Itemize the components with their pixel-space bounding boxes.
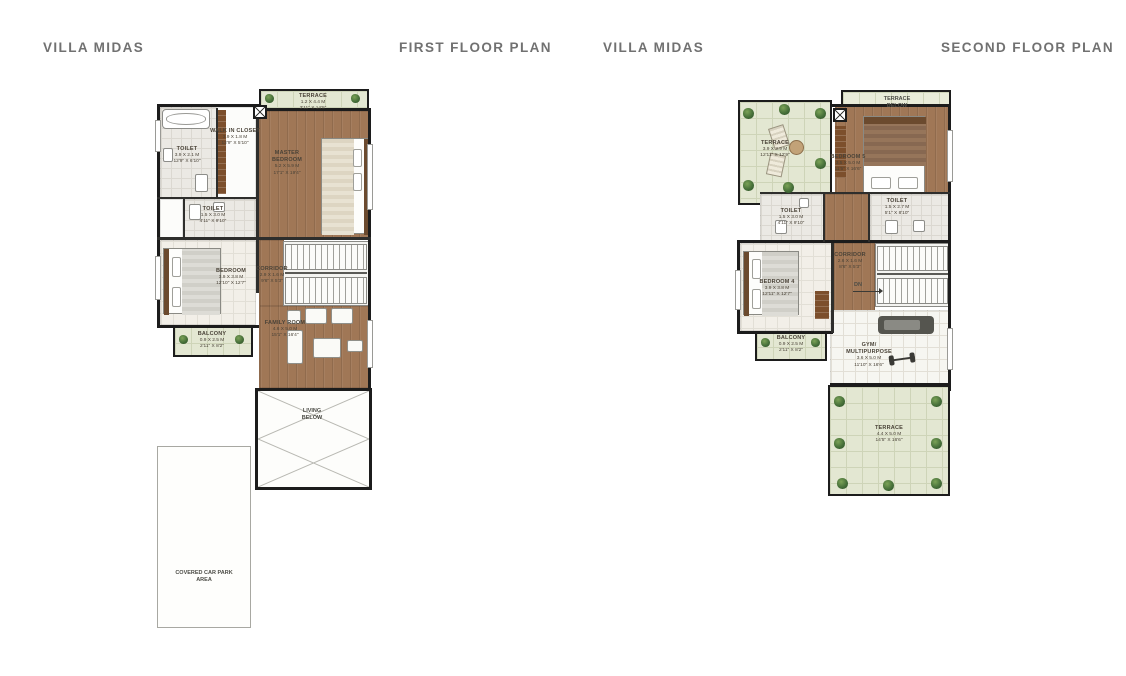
room-label-balcony: BALCONY 0.9 X 2.5 M 2'11" X 8'2": [184, 331, 240, 351]
wall: [737, 240, 950, 243]
dn-arrow-line: [853, 291, 879, 292]
room-label-toilet-left: TOILET 1.5 X 3.0 M 4'11" X 9'10": [763, 208, 819, 228]
staircase2: [875, 243, 950, 307]
room-label-master-bedroom: MASTER BEDROOM 5.2 X 5.9 M 17'1" X 19'4": [259, 150, 315, 177]
living-below-void: [255, 388, 372, 490]
plant-icon: [779, 104, 790, 115]
wc-icon: [195, 174, 208, 192]
window: [367, 320, 373, 368]
plant-icon: [931, 396, 942, 407]
plant-icon: [783, 182, 794, 193]
room-label-toilet-right: TOILET 1.5 X 2.7 M 5'1" X 8'10": [869, 198, 925, 218]
wall: [737, 331, 833, 334]
left-plan-title: VILLA MIDAS: [43, 40, 144, 55]
shaft-icon: [253, 105, 267, 119]
room-label-corridor: CORRIDOR 2.9 X 1.6 M 9'6" X 5'3": [249, 266, 295, 286]
right-plan-name: SECOND FLOOR PLAN: [941, 40, 1114, 55]
plant-icon: [743, 180, 754, 191]
window: [947, 130, 953, 182]
wall: [216, 108, 218, 198]
floor-plan-sheet: { "headers": { "left": { "title": "VILLA…: [0, 0, 1126, 676]
sofa-icon: [331, 308, 353, 324]
treadmill-icon: [878, 316, 934, 334]
room-label-toilet-common: TOILET 1.5 X 3.0 M 4'11" X 9'10": [185, 206, 241, 226]
room-label-terrace-upper: TERRACE 3.9 X 3.9 M 12'11" X 12'9": [747, 140, 803, 160]
window: [367, 144, 373, 210]
plant-icon: [351, 94, 360, 103]
room-label-corridor2: CORRIDOR 2.6 X 1.6 M 8'6" X 5'3": [827, 252, 873, 272]
lobby-room: [824, 194, 870, 242]
wall: [830, 383, 950, 386]
plant-icon: [834, 438, 845, 449]
room-label-balcony2: BALCONY 0.9 X 2.5 M 2'11" X 8'2": [763, 335, 819, 355]
wardrobe-icon: [218, 110, 226, 194]
plant-icon: [883, 480, 894, 491]
dn-arrow-icon: [879, 288, 883, 294]
left-plan-name: FIRST FLOOR PLAN: [399, 40, 552, 55]
wc-icon: [885, 220, 898, 234]
plant-icon: [815, 158, 826, 169]
wall: [157, 104, 261, 107]
room-label-walk-in-closet: WALK IN CLOSET 3.9 X 1.8 M 12'9" X 5'10": [207, 128, 263, 148]
stair-flight: [285, 277, 367, 304]
shaft-icon: [833, 108, 847, 122]
wall: [823, 192, 825, 242]
wall: [157, 237, 259, 240]
sink-icon: [799, 198, 809, 208]
window: [155, 256, 161, 300]
plant-icon: [931, 438, 942, 449]
window: [947, 328, 953, 370]
room-label-bedroom4: BEDROOM 4 3.9 X 3.8 M 12'11" X 12'7": [749, 279, 805, 299]
note-car-park: COVERED CAR PARK AREA: [169, 570, 239, 584]
wall: [157, 325, 259, 328]
room-label-bedroom5: BEDROOM 5 3.5 X 5.0 M 11'5" X 16'6": [827, 154, 869, 174]
sink-icon: [913, 220, 925, 232]
room-label-toilet-master: TOILET 3.9 X 2.1 M 12'9" X 6'10": [161, 146, 213, 166]
note-living-below: LIVING BELOW: [297, 408, 327, 422]
bed-icon: [863, 116, 925, 194]
desk-icon: [815, 291, 829, 319]
plant-icon: [931, 478, 942, 489]
coffee-table-icon: [313, 338, 341, 358]
note-terrace-below: TERRACE BELOW: [875, 96, 919, 110]
first-floor-plan: TERRACE 1.2 X 4.4 M 3'11" X 14'5" WALK I…: [155, 88, 377, 633]
wall: [157, 197, 257, 199]
room-label-family-room: FAMILY ROOM 4.6 X 5.0 M 15'1" X 16'4": [257, 320, 313, 340]
stair-rail: [877, 273, 948, 275]
stair-rail: [285, 272, 367, 274]
void-cross-icon: [258, 391, 369, 487]
staircase: [283, 241, 369, 306]
plant-icon: [265, 94, 274, 103]
wall: [256, 237, 371, 240]
armchair-icon: [347, 340, 363, 352]
right-plan-title: VILLA MIDAS: [603, 40, 704, 55]
bathtub-icon: [162, 109, 210, 129]
note-dn: DN: [851, 282, 865, 289]
stair-flight: [285, 244, 367, 270]
room-label-gym: GYM/ MULTIPURPOSE 3.6 X 5.0 M 11'10" X 1…: [838, 342, 900, 369]
covered-car-park: [157, 446, 251, 628]
window: [735, 270, 741, 310]
bed-icon: [321, 138, 369, 234]
plant-icon: [815, 108, 826, 119]
plant-icon: [743, 108, 754, 119]
utility-nook: [160, 199, 183, 238]
plant-icon: [834, 396, 845, 407]
room-label-terrace-lower: TERRACE 4.4 X 5.0 M 14'5" X 16'6": [859, 425, 919, 445]
second-floor-plan: TERRACE BELOW TERRACE 3.9 X 3.9 M 12'11"…: [735, 88, 953, 500]
stair-flight: [877, 246, 948, 271]
stair-flight: [877, 278, 948, 304]
plant-icon: [837, 478, 848, 489]
room-label-terrace: TERRACE 1.2 X 4.4 M 3'11" X 14'5": [285, 93, 341, 113]
